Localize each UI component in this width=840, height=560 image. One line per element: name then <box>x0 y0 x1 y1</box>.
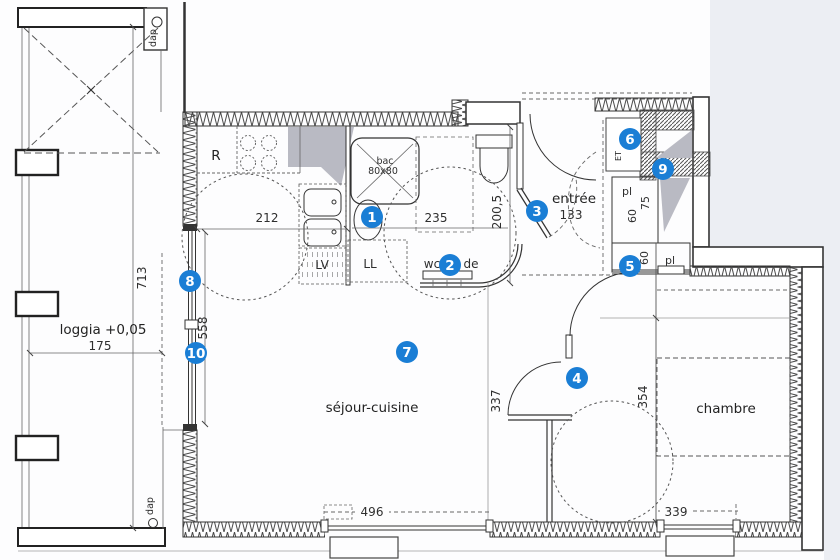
room-label-entree: entrée <box>552 191 596 207</box>
marker-3-number: 3 <box>532 204 541 220</box>
entry-door-swing <box>530 114 596 180</box>
chambre-zone <box>600 290 790 456</box>
window-sill-box <box>666 536 734 556</box>
wc-bowl-icon <box>480 148 508 183</box>
marker-1[interactable]: 1 <box>361 206 383 228</box>
dim-entree: 133 <box>560 208 583 222</box>
dim-235: 235 <box>425 211 448 225</box>
floor-plan: séjour-cuisine chambre entrée 133 loggia… <box>0 0 840 560</box>
marker-7-number: 7 <box>402 345 411 361</box>
loggia-zone <box>16 8 184 546</box>
marker-6[interactable]: 6 <box>619 128 641 150</box>
marker-10-number: 10 <box>187 346 206 362</box>
dim-354: 354 <box>636 386 650 409</box>
closet-upper-depth: 75 <box>639 196 652 210</box>
dim-558: 558 <box>196 317 210 340</box>
marker-5[interactable]: 5 <box>619 255 641 277</box>
loggia-top-wall <box>18 8 146 27</box>
sejour-door-leaf <box>566 335 572 358</box>
marker-8-number: 8 <box>185 274 194 290</box>
dishwasher-label: LV <box>315 258 329 272</box>
dim-713: 713 <box>135 267 149 290</box>
marker-6-number: 6 <box>625 132 634 148</box>
marker-1-number: 1 <box>367 210 376 226</box>
entry-door-leaf <box>466 102 520 124</box>
washing-machine-box <box>348 240 407 282</box>
cooktop-icon <box>241 136 277 171</box>
marker-3[interactable]: 3 <box>526 200 548 222</box>
chambre-door-swing <box>508 362 561 415</box>
shaft-label: ET <box>614 151 623 161</box>
marker-4[interactable]: 4 <box>566 367 588 389</box>
marker-8[interactable]: 8 <box>179 270 201 292</box>
dim-200-5: 200,5 <box>490 195 504 229</box>
dim-496: 496 <box>361 505 384 519</box>
loggia-bottom-wall <box>18 528 165 546</box>
shower-label-2: 80x80 <box>368 166 398 177</box>
window-sill-box <box>330 537 398 558</box>
dim-339: 339 <box>665 505 688 519</box>
fridge-label: R <box>211 148 220 164</box>
chambre-partition <box>508 362 572 522</box>
duct-bottom-circle-icon <box>149 519 158 528</box>
pier <box>16 292 58 316</box>
duct-top-label: dap <box>148 29 159 47</box>
kitchen-counter-gray <box>288 127 354 186</box>
room-label-chambre: chambre <box>696 401 756 417</box>
closet-upper-label: pl <box>622 185 632 198</box>
marker-2-number: 2 <box>445 258 454 274</box>
room-label-sejour-cuisine: séjour-cuisine <box>326 400 419 416</box>
duct-gray-triangle <box>656 130 692 158</box>
closet-lower-label: pl <box>665 254 675 267</box>
wc-label-suffix: de <box>464 257 479 271</box>
wc-label: wc <box>424 257 440 271</box>
sejour-door-swing <box>570 272 634 336</box>
pier <box>16 436 58 460</box>
pier <box>16 150 58 175</box>
marker-5-number: 5 <box>625 259 634 275</box>
floor-plan-page: séjour-cuisine chambre entrée 133 loggia… <box>0 0 840 560</box>
marker-9[interactable]: 9 <box>652 158 674 180</box>
closet-upper-width: 60 <box>626 209 639 223</box>
marker-9-number: 9 <box>658 162 667 178</box>
marker-7[interactable]: 7 <box>396 341 418 363</box>
washing-machine-label: LL <box>363 257 377 271</box>
duct-bottom-label: dap <box>145 497 156 515</box>
dim-337: 337 <box>489 390 503 413</box>
marker-2[interactable]: 2 <box>439 254 461 276</box>
dim-212: 212 <box>256 211 279 225</box>
duct-gray-triangle <box>660 178 690 232</box>
marker-4-number: 4 <box>572 371 581 387</box>
room-label-loggia: loggia +0,05 <box>60 322 147 338</box>
marker-10[interactable]: 10 <box>185 342 207 364</box>
dim-loggia: 175 <box>89 339 112 353</box>
wc-cistern-icon <box>476 135 512 148</box>
